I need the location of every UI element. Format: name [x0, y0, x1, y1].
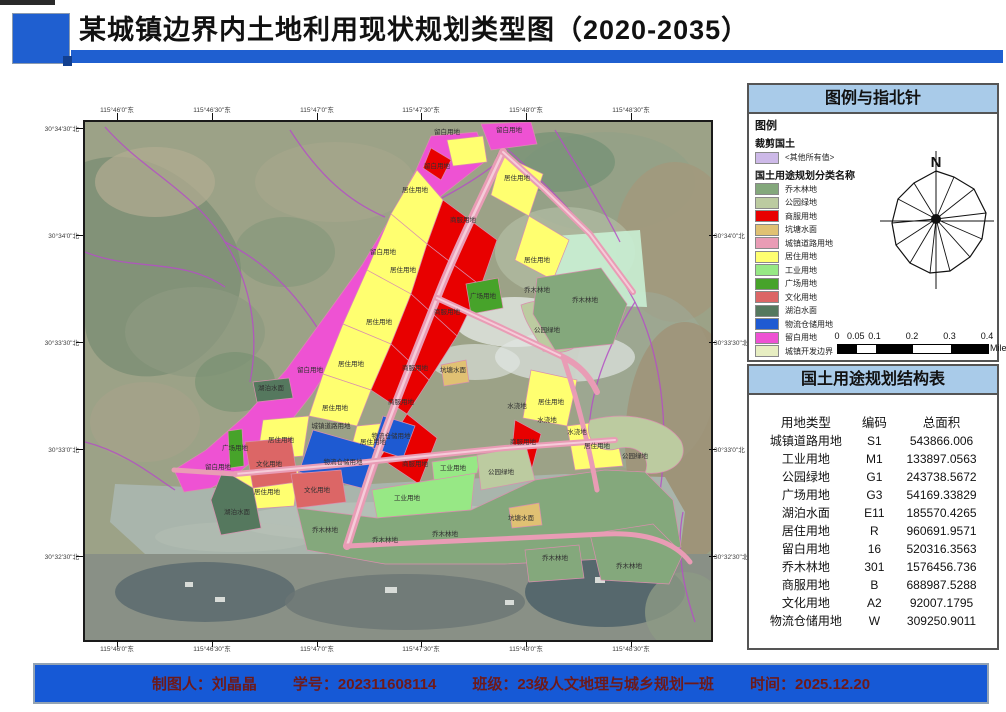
graticule-tick: [317, 113, 318, 120]
footer-class: 班级：23级人文地理与城乡规划一班: [472, 673, 714, 694]
graticule-tick: [526, 113, 527, 120]
map-sheet-page: 某城镇边界内土地利用现状规划类型图（2020-2035）: [0, 0, 1006, 712]
legend-item-label: 城镇开发边界: [785, 346, 833, 357]
legend-item-label: 居住用地: [785, 251, 817, 262]
map-area-label: 留白用地: [370, 247, 397, 256]
legend-swatch: [755, 251, 779, 263]
graticule-tick: [117, 113, 118, 120]
legend-swatch: [755, 152, 779, 164]
map-area-label: 居住用地: [504, 173, 531, 182]
map-area-label: 乔木林地: [572, 295, 599, 304]
legend-panel: 图例与指北针 图例 裁剪国土 <其他所有值> 国土用途规划分类名称 乔木林地公园…: [747, 83, 999, 362]
table-cell: 留白用地: [755, 540, 857, 558]
scale-bar-segment: [857, 345, 876, 353]
table-cell: 商服用地: [755, 576, 857, 594]
table-cell: A2: [857, 594, 892, 612]
table-row: 工业用地M1133897.0563: [755, 450, 991, 468]
map-area-label: 留白用地: [434, 127, 461, 136]
scale-tick-label: 0.3: [943, 331, 956, 341]
legend-item-label: 乔木林地: [785, 184, 817, 195]
legend-item-label: 商服用地: [785, 211, 817, 222]
graticule-tick: [421, 640, 422, 647]
graticule-tick: [212, 640, 213, 647]
map-area-label: 居住用地: [338, 359, 365, 368]
table-cell: 广场用地: [755, 486, 857, 504]
graticule-tick: [76, 449, 83, 450]
title-underline-notch: [63, 56, 72, 66]
map-area-label: 乔木林地: [524, 285, 551, 294]
table-row: 湖泊水面E11185570.4265: [755, 504, 991, 522]
graticule-tick: [709, 556, 716, 557]
graticule-tick: [317, 640, 318, 647]
table-cell: 54169.33829: [892, 486, 991, 504]
table-cell: 文化用地: [755, 594, 857, 612]
table-row: 广场用地G354169.33829: [755, 486, 991, 504]
table-cell: 城镇道路用地: [755, 432, 857, 450]
legend-item-label: 广场用地: [785, 278, 817, 289]
scale-tick-label: 0.1: [868, 331, 881, 341]
map-area-label: 文化用地: [304, 485, 331, 494]
legend-swatch: [755, 210, 779, 222]
graticule-label: 30°33'30"北: [714, 337, 748, 347]
table-cell: G1: [857, 468, 892, 486]
map-area-label: 商服用地: [402, 363, 429, 372]
map-area-label: 留白用地: [496, 125, 523, 134]
legend-swatch: [755, 197, 779, 209]
map-area-label: 居住用地: [254, 487, 281, 496]
legend-item-label: 工业用地: [785, 265, 817, 276]
map-area-label: 居住用地: [390, 265, 417, 274]
page-title: 某城镇边界内土地利用现状规划类型图（2020-2035）: [79, 8, 749, 47]
table-cell: 688987.5288: [892, 576, 991, 594]
graticule-tick: [76, 342, 83, 343]
table-row: 公园绿地G1243738.5672: [755, 468, 991, 486]
map-area-label: 居住用地: [584, 441, 611, 450]
table-header-cell: 总面积: [892, 411, 991, 432]
map-area-label: 水浇地: [537, 415, 557, 424]
graticule-label: 30°33'0"北: [714, 444, 745, 454]
scale-bar-segment: [951, 345, 989, 353]
legend-item-label: 物流仓储用地: [785, 319, 833, 330]
table-cell: 湖泊水面: [755, 504, 857, 522]
map-area-label: 物流仓储用地: [372, 431, 412, 440]
legend-swatch: [755, 345, 779, 357]
footer-maker: 制图人：刘晶晶: [152, 673, 257, 694]
legend-heading: 图例: [755, 117, 997, 133]
map-area-label: 工业用地: [440, 463, 467, 472]
map-area-label: 湖泊水面: [258, 383, 285, 392]
graticule-tick: [117, 640, 118, 647]
top-left-strip: [0, 0, 55, 5]
footer-bar: 制图人：刘晶晶 学号：202311608114 班级：23级人文地理与城乡规划一…: [33, 663, 989, 704]
compass-rose: N: [877, 149, 995, 319]
graticule-label: 30°34'0"北: [714, 230, 745, 240]
map-canvas: 留白用地留白用地留白用地留白用地留白用地留白用地居住用地居住用地居住用地居住用地…: [83, 120, 713, 642]
table-row: 文化用地A292007.1795: [755, 594, 991, 612]
map-area-label: 乔木林地: [432, 529, 459, 538]
map-area-label: 公园绿地: [488, 467, 515, 476]
scale-bar-segment: [838, 345, 857, 353]
map-area-label: 水浇地: [507, 401, 527, 410]
table-cell: G3: [857, 486, 892, 504]
map-area-label: 广场用地: [222, 443, 249, 452]
graticule-label: 30°33'0"北: [48, 444, 79, 454]
table-cell: W: [857, 612, 892, 630]
legend-swatch: [755, 318, 779, 330]
map-area-label: 文化用地: [256, 459, 283, 468]
map-area-label: 乔木林地: [312, 525, 339, 534]
footer-student-id: 学号：202311608114: [293, 673, 436, 694]
map-area-label: 居住用地: [524, 255, 551, 264]
map-area-label: 商服用地: [402, 459, 429, 468]
graticule-tick: [709, 449, 716, 450]
table-row: 物流仓储用地W309250.9011: [755, 612, 991, 630]
map-area-label: 公园绿地: [622, 451, 649, 460]
scale-tick-labels: 00.050.10.20.30.4: [837, 331, 997, 343]
table-cell: M1: [857, 450, 892, 468]
table-cell: 133897.0563: [892, 450, 991, 468]
table-cell: 工业用地: [755, 450, 857, 468]
graticule-label: 30°34'30"北: [45, 123, 79, 133]
map-area-label: 居住用地: [538, 397, 565, 406]
scale-bar-segments: [837, 344, 989, 354]
scale-tick-label: 0: [834, 331, 839, 341]
legend-swatch: [755, 305, 779, 317]
map-area-label: 留白用地: [205, 462, 232, 471]
table-cell: 16: [857, 540, 892, 558]
scale-unit-label: Miles: [990, 343, 1006, 353]
table-cell: B: [857, 576, 892, 594]
legend-item-label: 坑塘水面: [785, 224, 817, 235]
legend-item-label: 城镇道路用地: [785, 238, 833, 249]
legend-panel-title: 图例与指北针: [749, 85, 997, 114]
graticule-tick: [212, 113, 213, 120]
legend-swatch: [755, 237, 779, 249]
table-cell: 公园绿地: [755, 468, 857, 486]
map-area-label: 商服用地: [510, 437, 537, 446]
legend-swatch: [755, 224, 779, 236]
scale-tick-label: 0.2: [906, 331, 919, 341]
graticule-label: 30°33'30"北: [45, 337, 79, 347]
map-area-label: 湖泊水面: [224, 507, 251, 516]
table-cell: 1576456.736: [892, 558, 991, 576]
table-row: 商服用地B688987.5288: [755, 576, 991, 594]
table-cell: 520316.3563: [892, 540, 991, 558]
graticule-tick: [76, 128, 83, 129]
map-area-label: 坑塘水面: [508, 513, 535, 522]
legend-swatch: [755, 264, 779, 276]
scale-bar-segment: [876, 345, 914, 353]
table-cell: 居住用地: [755, 522, 857, 540]
table-header-cell: 编码: [857, 411, 892, 432]
north-arrow: N: [877, 149, 995, 319]
map-area-label: 广场用地: [470, 291, 497, 300]
legend-item-label: 湖泊水面: [785, 305, 817, 316]
table-row: 留白用地16520316.3563: [755, 540, 991, 558]
table-cell: 185570.4265: [892, 504, 991, 522]
table-row: 居住用地R960691.9571: [755, 522, 991, 540]
legend-item-label: <其他所有值>: [785, 152, 834, 163]
graticule-tick: [631, 113, 632, 120]
legend-body: 图例 裁剪国土 <其他所有值> 国土用途规划分类名称 乔木林地公园绿地商服用地坑…: [749, 117, 997, 365]
legend-item-label: 公园绿地: [785, 197, 817, 208]
legend-item: 物流仓储用地: [755, 318, 997, 332]
map-area-label: 留白用地: [297, 365, 324, 374]
table-cell: 960691.9571: [892, 522, 991, 540]
graticule-tick: [526, 640, 527, 647]
title-underline-bar: [71, 50, 1003, 63]
table-cell: E11: [857, 504, 892, 522]
graticule-tick: [421, 113, 422, 120]
map-area-label: 水浇地: [567, 427, 587, 436]
table-cell: S1: [857, 432, 892, 450]
map-area-label: 居住用地: [366, 317, 393, 326]
map-area-label: 物流仓储用地: [324, 457, 364, 466]
graticule-label: 30°32'30"北: [714, 551, 748, 561]
map-area-label: 商服用地: [450, 215, 477, 224]
map-area-label: 乔木林地: [542, 553, 569, 562]
scale-bar-segment: [913, 345, 951, 353]
scale-tick-label: 0.05: [847, 331, 865, 341]
map-area-label: 商服用地: [388, 397, 415, 406]
map-area-label: 乔木林地: [372, 535, 399, 544]
table-row: 城镇道路用地S1543866.006: [755, 432, 991, 450]
map-area-label: 商服用地: [434, 307, 461, 316]
map-area-label: 居住用地: [268, 435, 295, 444]
scale-bar: 00.050.10.20.30.4 Miles: [837, 331, 997, 361]
graticule-tick: [76, 235, 83, 236]
legend-swatch: [755, 291, 779, 303]
land-use-map: 留白用地留白用地留白用地留白用地留白用地留白用地居住用地居住用地居住用地居住用地…: [85, 122, 711, 640]
map-area-label: 工业用地: [394, 493, 421, 502]
legend-swatch: [755, 183, 779, 195]
table-cell: 301: [857, 558, 892, 576]
table-cell: 物流仓储用地: [755, 612, 857, 630]
legend-swatch: [755, 332, 779, 344]
legend-item-label: 文化用地: [785, 292, 817, 303]
table-header-cell: 用地类型: [755, 411, 857, 432]
land-use-structure-table: 用地类型编码总面积 城镇道路用地S1543866.006工业用地M1133897…: [755, 411, 991, 630]
table-cell: 543866.006: [892, 432, 991, 450]
graticule-tick: [709, 235, 716, 236]
map-area-label: 居住用地: [322, 403, 349, 412]
map-area-label: 公园绿地: [534, 325, 561, 334]
legend-swatch: [755, 278, 779, 290]
table-cell: R: [857, 522, 892, 540]
map-area-label: 城镇道路用地: [312, 421, 352, 430]
graticule-label: 30°32'30"北: [45, 551, 79, 561]
table-header-row: 用地类型编码总面积: [755, 411, 991, 432]
table-cell: 309250.9011: [892, 612, 991, 630]
graticule-tick: [76, 556, 83, 557]
table-cell: 92007.1795: [892, 594, 991, 612]
table-row: 乔木林地3011576456.736: [755, 558, 991, 576]
map-area-label: 居住用地: [402, 185, 429, 194]
logo-square: [12, 13, 70, 64]
structure-table-panel: 国土用途规划结构表 用地类型编码总面积 城镇道路用地S1543866.006工业…: [747, 364, 999, 650]
legend-item-label: 留白用地: [785, 332, 817, 343]
map-area-label: 乔木林地: [616, 561, 643, 570]
structure-table-title: 国土用途规划结构表: [749, 366, 997, 395]
table-cell: 243738.5672: [892, 468, 991, 486]
graticule-tick: [709, 342, 716, 343]
map-area-label: 坑塘水面: [440, 365, 467, 374]
scale-tick-label: 0.4: [981, 331, 994, 341]
footer-date: 时间：2025.12.20: [750, 673, 870, 694]
legend-clip-group-label: 裁剪国土: [755, 135, 997, 150]
graticule-label: 30°34'0"北: [48, 230, 79, 240]
table-cell: 乔木林地: [755, 558, 857, 576]
map-area-label: 留白用地: [424, 161, 451, 170]
graticule-tick: [631, 640, 632, 647]
